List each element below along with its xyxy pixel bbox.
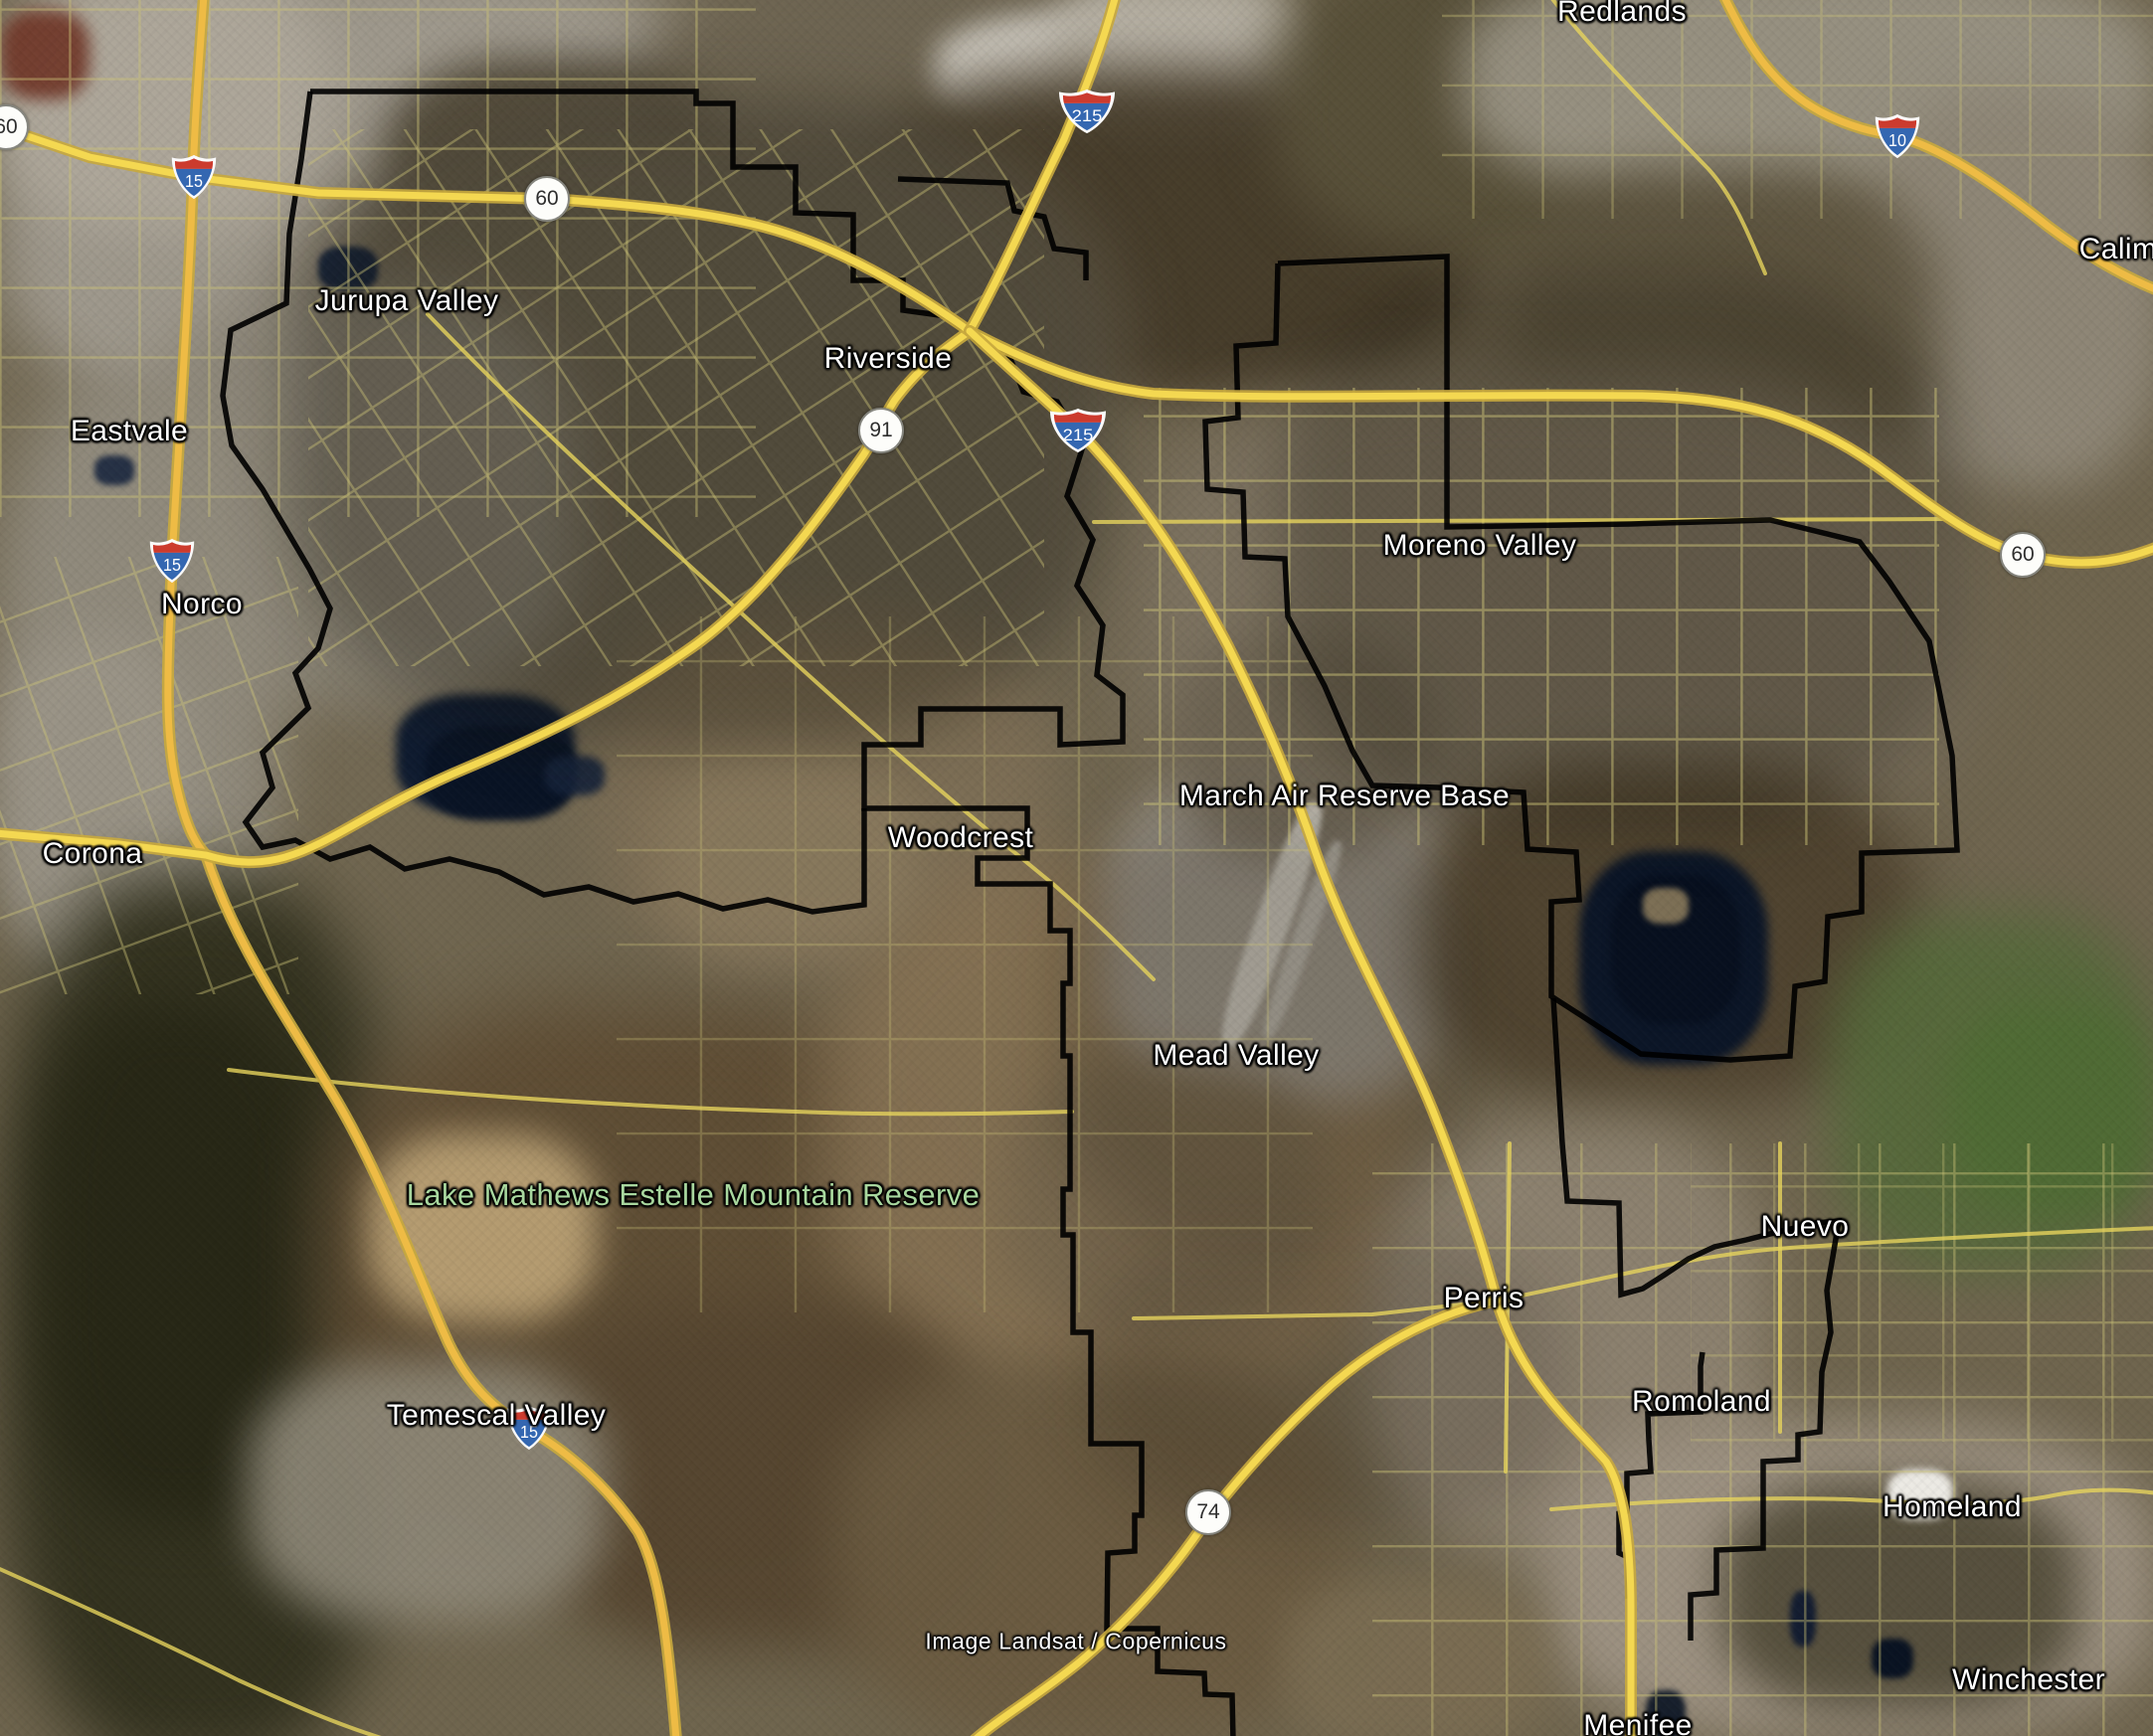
place-label-homeland: Homeland [1883, 1490, 2022, 1524]
satellite-map-canvas[interactable]: 151515215215106060609174 RedlandsCalimJu… [0, 0, 2153, 1736]
place-label-march-air-reserve-base: March Air Reserve Base [1179, 780, 1510, 813]
place-label-calimesa: Calim [2079, 233, 2153, 266]
place-label-lake-mathews-estelle-mountain-reserve: Lake Mathews Estelle Mountain Reserve [407, 1177, 981, 1213]
place-label-moreno-valley: Moreno Valley [1383, 529, 1577, 563]
place-label-layer: RedlandsCalimJurupa ValleyRiversideEastv… [0, 0, 2153, 1736]
place-label-perris: Perris [1444, 1282, 1525, 1315]
place-label-mead-valley: Mead Valley [1153, 1039, 1319, 1073]
place-label-corona: Corona [43, 837, 143, 871]
imagery-attribution: Image Landsat / Copernicus [925, 1629, 1226, 1655]
place-label-riverside: Riverside [824, 342, 953, 376]
place-label-temescal-valley: Temescal Valley [387, 1399, 607, 1433]
place-label-eastvale: Eastvale [71, 415, 188, 448]
place-label-winchester: Winchester [1952, 1663, 2105, 1697]
place-label-norco: Norco [161, 588, 243, 621]
place-label-redlands: Redlands [1557, 0, 1687, 29]
place-label-jurupa-valley: Jurupa Valley [315, 284, 499, 318]
place-label-menifee: Menifee [1583, 1709, 1693, 1736]
place-label-romoland: Romoland [1632, 1385, 1771, 1419]
place-label-nuevo: Nuevo [1761, 1210, 1850, 1244]
place-label-woodcrest: Woodcrest [888, 821, 1033, 855]
